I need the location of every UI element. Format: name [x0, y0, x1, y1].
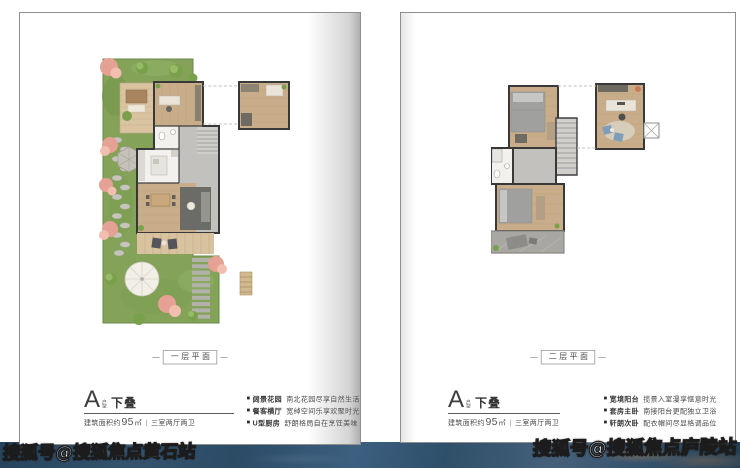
unit-info-left: A 户型 下叠 建筑面积约95㎡ | 三室两厅两卫 [84, 390, 243, 433]
selling-points-right: 宽境阳台揽景入室漫享惬意时光 套房主卧南接阳台更配独立卫浴 轩朗次卧配衣帽间尽显… [604, 392, 740, 428]
area-line: 建筑面积约95㎡ | 三室两厅两卫 [448, 416, 559, 428]
watermark-bottom-left: 搜狐号@搜狐焦点黄石站 [2, 438, 196, 465]
bullet-square-icon [604, 409, 607, 412]
study-annex [596, 84, 659, 149]
master-bedroom [496, 184, 564, 231]
bullet-square-icon [247, 421, 250, 424]
selling-point: 阔景花园南北花园尽享自然生活 [247, 394, 360, 402]
bathroom [491, 148, 513, 184]
label-dash [530, 357, 537, 358]
living-dining-room [137, 183, 211, 233]
unit-small-chars: 户型 [102, 401, 107, 409]
title-underline [448, 413, 560, 414]
unit-info-right: A 户型 下叠 建筑面积约95㎡ | 三室两厅两卫 [448, 390, 607, 433]
garden-umbrella [125, 262, 159, 296]
plan-connector-dashes [203, 86, 239, 124]
bullet-square-icon [247, 409, 250, 412]
first-floor-plan [96, 56, 301, 348]
selling-point: 套房主卧南接阳台更配独立卫浴 [604, 406, 717, 414]
unit-small-chars: 户型 [466, 401, 471, 409]
unit-letter: A [84, 390, 100, 410]
selling-point: 轩朗次卧配衣帽间尽显格调品位 [604, 418, 717, 426]
garden-bench [240, 272, 252, 295]
unit-title: A 户型 下叠 [84, 390, 243, 410]
label-dash [152, 357, 159, 358]
deck [120, 83, 154, 133]
second-floor-plan [491, 76, 676, 271]
watermark-bottom-right: 搜狐号@搜狐焦点庐陵站 [533, 433, 738, 461]
bullet-square-icon [604, 397, 607, 400]
selling-points-left: 阔景花园南北花园尽享自然生活 餐客横厅宽绰空间乐享欢聚时光 U型厨房舒朗格局自在… [247, 392, 408, 428]
label-dash [220, 357, 227, 358]
bedroom-north [509, 86, 558, 148]
unit-suffix: 下叠 [475, 397, 501, 409]
label-dash [598, 357, 605, 358]
annex-room [239, 82, 289, 129]
bullet-square-icon [247, 397, 250, 400]
selling-point: 餐客横厅宽绰空间乐享欢聚时光 [247, 406, 360, 414]
kitchen [137, 149, 179, 183]
page-right: 二层平面 A 户型 下叠 建筑面积约95㎡ | 三室两厅两卫 宽境阳台揽景入室漫… [400, 12, 736, 443]
unit-title: A 户型 下叠 [448, 390, 607, 410]
study-room [154, 82, 203, 126]
area-line: 建筑面积约95㎡ | 三室两厅两卫 [84, 416, 195, 428]
floor-label-text: 二层平面 [541, 350, 595, 364]
entry-bathroom [154, 126, 179, 149]
page-left: 一层平面 A 户型 下叠 建筑面积约95㎡ | 三室两厅两卫 阔景花园南北花园尽… [19, 12, 361, 445]
unit-letter: A [448, 390, 464, 410]
unit-suffix: 下叠 [111, 397, 137, 409]
floor-label-text: 一层平面 [163, 350, 217, 364]
floor-label-left: 一层平面 [54, 350, 326, 364]
brochure-spread: 一层平面 A 户型 下叠 建筑面积约95㎡ | 三室两厅两卫 阔景花园南北花园尽… [0, 0, 740, 468]
floor-label-right: 二层平面 [434, 350, 701, 364]
stairs [556, 118, 577, 175]
terrace [137, 233, 214, 254]
selling-point: 宽境阳台揽景入室漫享惬意时光 [604, 394, 717, 402]
balcony [491, 231, 564, 253]
title-underline [84, 413, 234, 414]
bullet-square-icon [604, 421, 607, 424]
selling-point: U型厨房舒朗格局自在烹饪美味 [247, 418, 360, 426]
hallway [513, 148, 556, 184]
